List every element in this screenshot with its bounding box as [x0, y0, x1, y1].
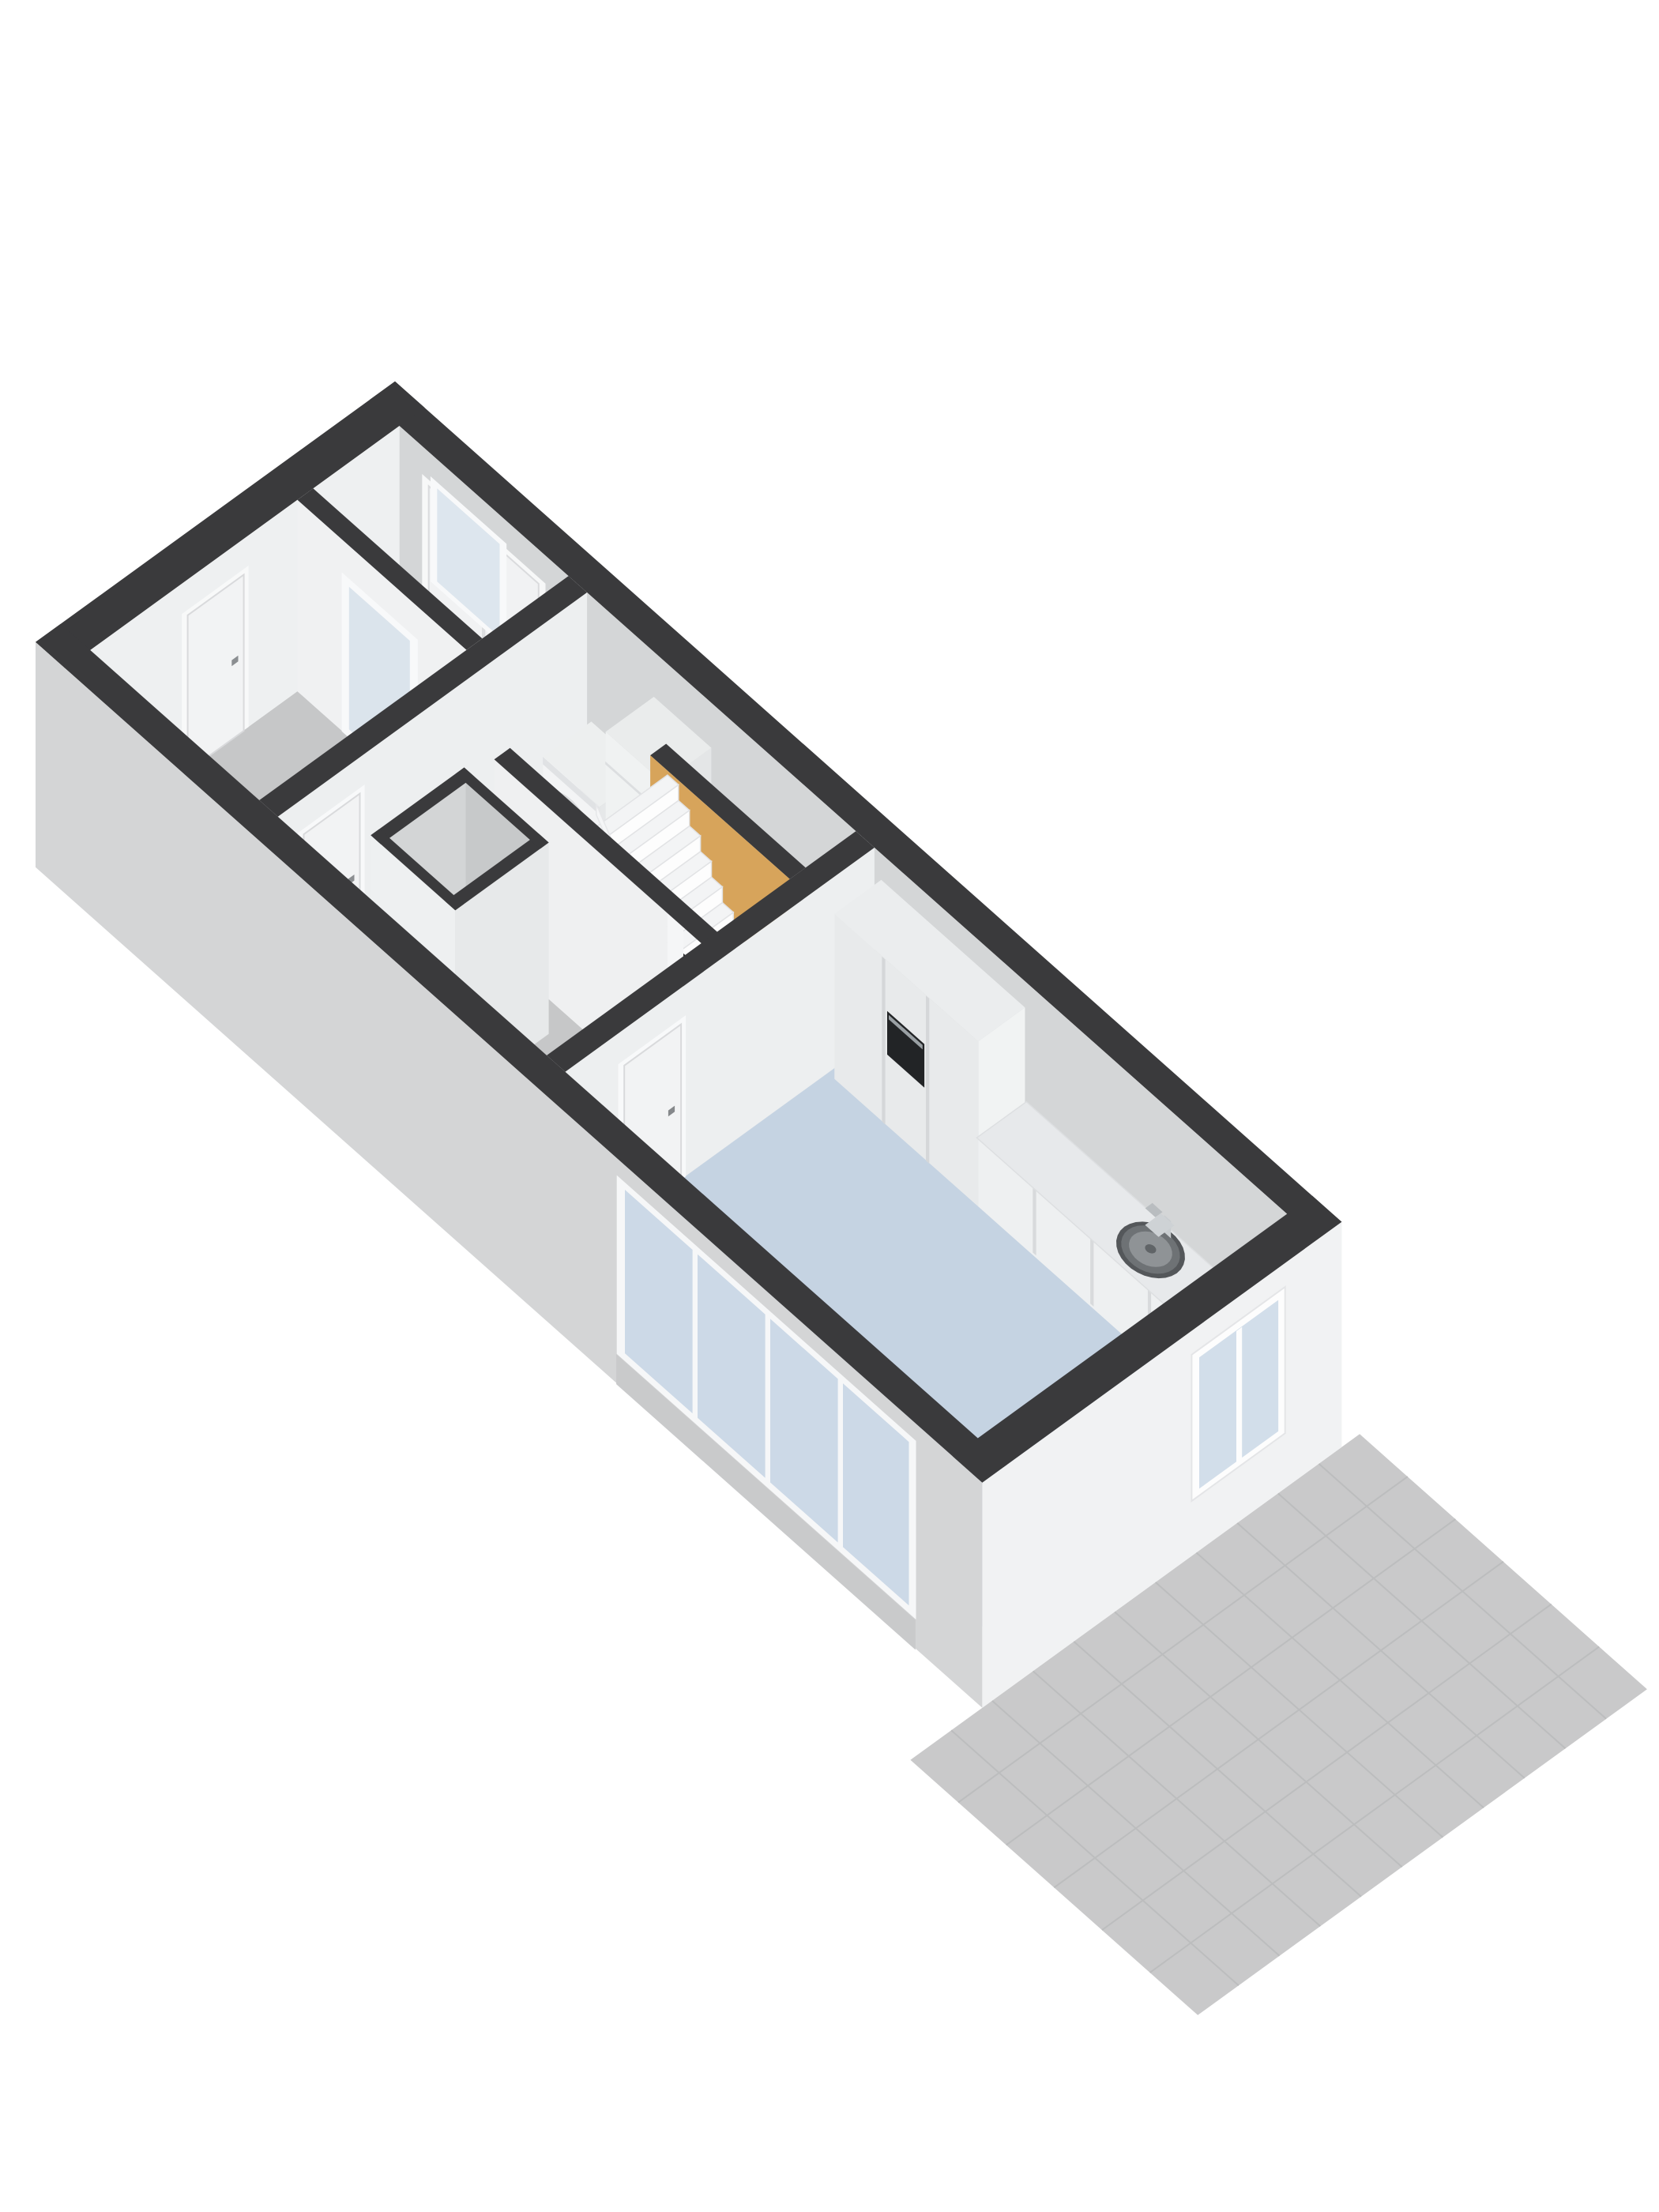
floorplan-3d-stage [0, 0, 1659, 2212]
end-window-mullion [1236, 1327, 1242, 1463]
kitchen-tall-unit-seam-1 [882, 957, 885, 1125]
kitchen-counter-seam-2 [1090, 1239, 1093, 1307]
kitchen-counter-seam-1 [1033, 1188, 1036, 1256]
floorplan-3d-canvas [0, 0, 1659, 2212]
kitchen-tall-unit-seam-2 [926, 995, 929, 1164]
